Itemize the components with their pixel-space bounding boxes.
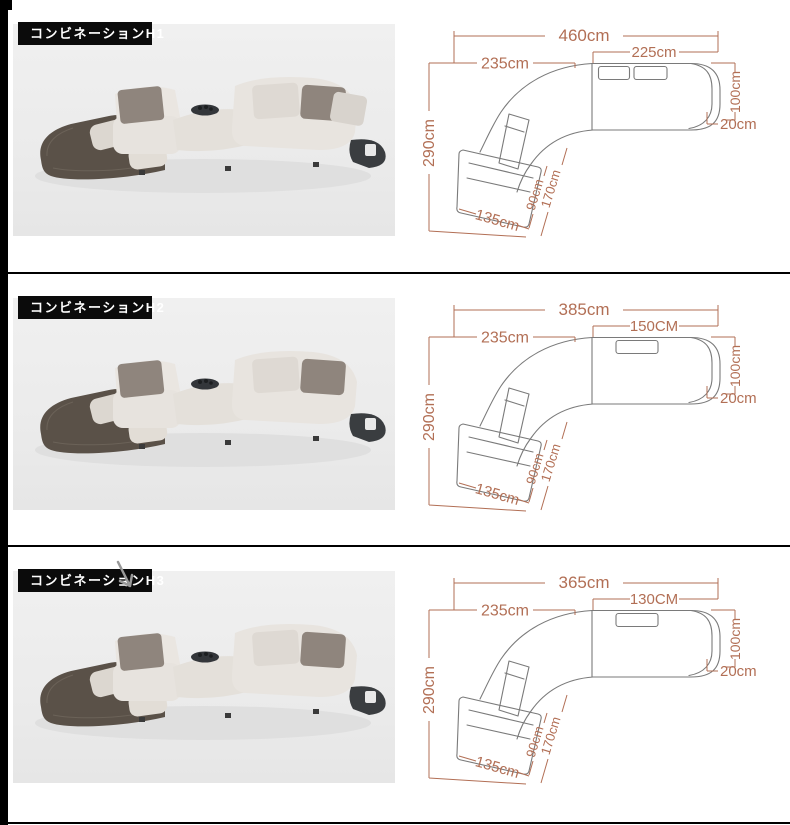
dim-right-section-width: 225cm	[631, 44, 676, 61]
dim-back-height: 100cm	[727, 71, 743, 113]
dim-left-section-width: 235cm	[481, 56, 529, 73]
dimension-diagram: 365cm 130CM 235cm 290cm 100cm 20cm 135cm…	[423, 553, 763, 803]
dim-armrest-width: 20cm	[720, 663, 757, 680]
sofa-top-view-outline	[457, 611, 720, 775]
sofa-leg	[313, 709, 319, 714]
dim-chaise-width: 135cm	[473, 480, 521, 509]
dimension-lines	[429, 31, 735, 237]
dim-total-width: 365cm	[558, 573, 609, 592]
dimension-lines	[429, 578, 735, 784]
dim-overall-depth: 290cm	[423, 666, 438, 714]
dark-cushion	[117, 86, 164, 124]
tray-item	[204, 105, 208, 109]
light-cushion	[252, 356, 300, 393]
dimension-diagram: 385cm 150CM 235cm 290cm 100cm 20cm 135cm…	[423, 280, 763, 530]
product-label: コンビネーションH1	[18, 22, 152, 45]
light-cushion	[252, 82, 300, 119]
tray-item	[209, 107, 213, 111]
tray-item	[204, 652, 208, 656]
dim-armrest-width: 20cm	[720, 390, 757, 407]
cup	[365, 418, 376, 430]
dim-overall-depth: 290cm	[423, 119, 438, 167]
tray-item	[198, 653, 202, 657]
tray-item	[204, 379, 208, 383]
tray-item	[198, 106, 202, 110]
dim-right-section-width: 130CM	[630, 591, 678, 608]
dim-right-section-width: 150CM	[630, 318, 678, 335]
sofa-leg	[225, 713, 231, 718]
product-label-text: コンビネーションH3	[30, 573, 165, 588]
tray-item	[209, 654, 213, 658]
dim-armrest-width: 20cm	[720, 116, 757, 133]
dim-left-section-width: 235cm	[481, 330, 529, 347]
sofa-leg	[139, 717, 145, 722]
cup	[365, 691, 376, 703]
product-label-text: コンビネーションH1	[30, 26, 165, 41]
sofa-top-view-outline	[457, 64, 720, 228]
page-root: { "page": { "background": "#ffffff", "ac…	[0, 0, 790, 825]
tray-item	[198, 380, 202, 384]
dimension-lines	[429, 305, 735, 511]
dim-back-height: 100cm	[727, 618, 743, 660]
sofa-photo-illustration	[13, 24, 395, 236]
dim-chaise-width: 135cm	[473, 206, 521, 235]
sofa-leg	[139, 444, 145, 449]
product-photo-card: コンビネーションH3	[13, 571, 395, 783]
product-label-text: コンビネーションH2	[30, 300, 165, 315]
dim-left-section-width: 235cm	[481, 603, 529, 620]
sofa-leg	[313, 436, 319, 441]
back-cushion	[634, 67, 667, 80]
dim-overall-depth: 290cm	[423, 393, 438, 441]
back-cushion	[599, 67, 630, 80]
dimension-diagram: 460cm 225cm 235cm 290cm 100cm 20cm 135cm…	[423, 6, 763, 256]
sofa-leg	[225, 440, 231, 445]
product-photo-card: コンビネーションH2	[13, 298, 395, 510]
product-label: コンビネーションH2	[18, 296, 152, 319]
cup	[365, 144, 376, 156]
product-row: コンビネーションH1	[0, 0, 790, 272]
dark-cushion	[117, 360, 164, 398]
product-label: コンビネーションH3	[18, 569, 152, 592]
sofa-photo-illustration	[13, 298, 395, 510]
tray-item	[209, 381, 213, 385]
dark-cushion	[300, 359, 346, 396]
back-cushion	[616, 614, 658, 627]
sofa-leg	[139, 170, 145, 175]
dark-cushion	[300, 632, 346, 669]
bottom-divider	[0, 822, 790, 824]
light-cushion	[252, 629, 300, 666]
dim-chaise-width: 135cm	[473, 753, 521, 782]
sofa-leg	[225, 166, 231, 171]
dim-back-height: 100cm	[727, 345, 743, 387]
sofa-photo-illustration	[13, 571, 395, 783]
product-row: コンビネーションH3	[0, 547, 790, 822]
light-cushion	[329, 91, 368, 126]
product-row: コンビネーションH2	[0, 274, 790, 545]
sofa-leg	[313, 162, 319, 167]
back-cushion	[616, 341, 658, 354]
product-photo-card: コンビネーションH1	[13, 24, 395, 236]
dark-cushion	[117, 633, 164, 671]
sofa-top-view-outline	[457, 338, 720, 502]
dim-total-width: 460cm	[558, 26, 609, 45]
cursor-arrow-icon	[110, 560, 140, 594]
dim-total-width: 385cm	[558, 300, 609, 319]
